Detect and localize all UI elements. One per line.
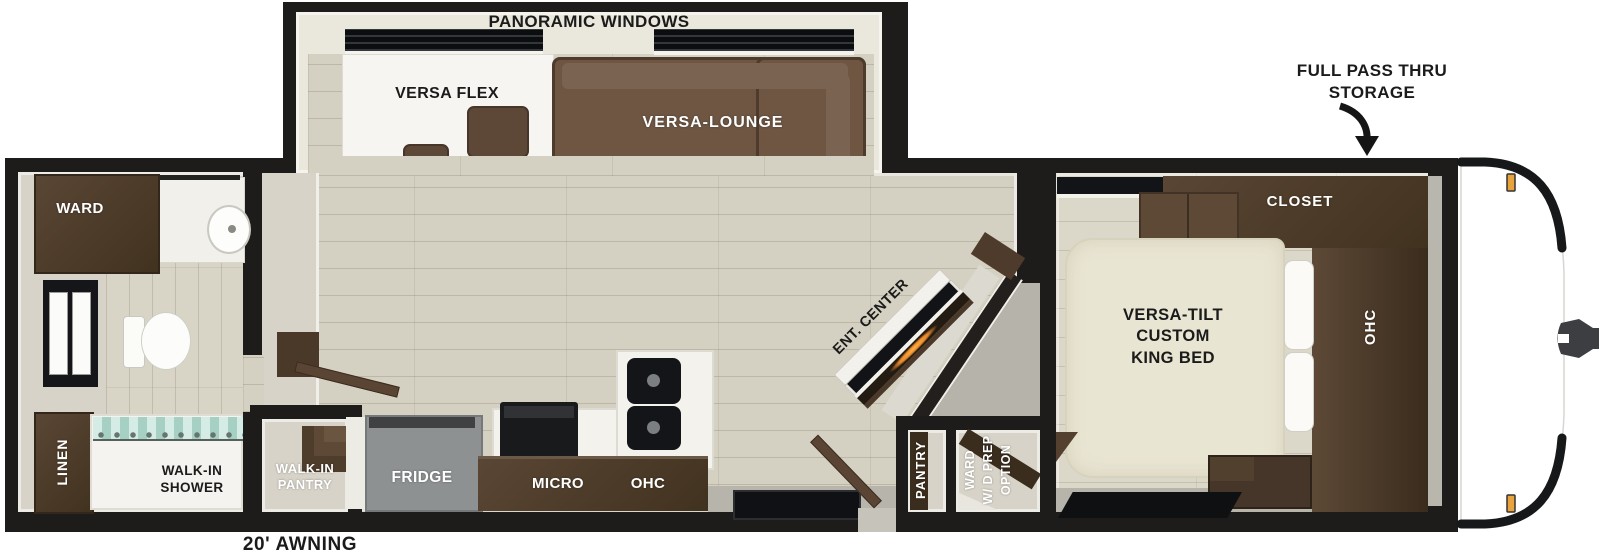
sink-drain — [228, 225, 236, 233]
pillow — [1284, 260, 1314, 350]
bathroom-window-pane — [49, 292, 68, 375]
bathroom-window-pane — [72, 292, 91, 375]
entry-threshold — [858, 508, 896, 532]
kitchen-ohc-label: OHC — [598, 475, 698, 494]
ward-wd-label-3: OPTION — [999, 426, 1013, 514]
pillow — [1284, 352, 1314, 432]
bedroom-divider-wall — [1040, 173, 1056, 512]
walk-in-pantry-label: WALK-IN PANTRY — [253, 461, 357, 494]
sink-drain — [647, 374, 660, 387]
front-storage-strip — [1428, 176, 1442, 506]
marker-light — [1507, 174, 1515, 191]
versa-flex-label: VERSA FLEX — [357, 84, 537, 104]
hitch-notch — [1558, 334, 1569, 343]
storage-arrow-icon — [1332, 102, 1384, 160]
fridge — [365, 415, 483, 512]
slideout-bridge-floor — [308, 156, 874, 176]
fridge-label: FRIDGE — [367, 468, 477, 487]
versa-lounge-label: VERSA-LOUNGE — [593, 113, 833, 133]
bathroom-counter-edge — [150, 175, 240, 180]
walk-in-shower-label: WALK-IN SHOWER — [122, 463, 262, 497]
panoramic-window-right — [654, 29, 854, 55]
nose-body — [1461, 160, 1564, 526]
awning-label: 20' AWNING — [210, 533, 390, 557]
sofa-backrest — [562, 63, 848, 89]
floor-plan: PANORAMIC WINDOWS VERSA FLEX VERSA-LOUNG… — [0, 0, 1600, 557]
bedroom-bottom-window — [1058, 492, 1242, 518]
panoramic-window-left — [345, 29, 543, 55]
toilet — [141, 312, 191, 370]
trailer-nose — [1455, 148, 1600, 554]
shower-curtain — [93, 417, 243, 441]
ward-label: WARD — [40, 200, 120, 219]
closet-label: CLOSET — [1235, 193, 1365, 212]
bed-steps-top — [1210, 457, 1254, 481]
marker-light — [1507, 495, 1515, 512]
pantry-label: PANTRY — [913, 428, 929, 512]
pantry-steps — [324, 426, 346, 442]
bathroom-door-opening — [243, 355, 264, 412]
linen-label: LINEN — [54, 420, 70, 504]
sink-drain — [647, 421, 660, 434]
fridge-top — [369, 417, 475, 428]
stove-top — [504, 406, 574, 418]
ward-cabinet — [34, 174, 160, 274]
ward-wd-label-2: W/ D PREP — [981, 426, 995, 514]
bedroom-ohc-label: OHC — [1362, 277, 1378, 377]
entry-window — [733, 490, 861, 520]
ward-wd-label-1: WARD — [963, 426, 977, 514]
ottoman — [467, 106, 529, 158]
full-pass-thru-label: FULL PASS THRU STORAGE — [1272, 60, 1472, 104]
king-bed-label: VERSA-TILT CUSTOM KING BED — [1080, 305, 1266, 369]
